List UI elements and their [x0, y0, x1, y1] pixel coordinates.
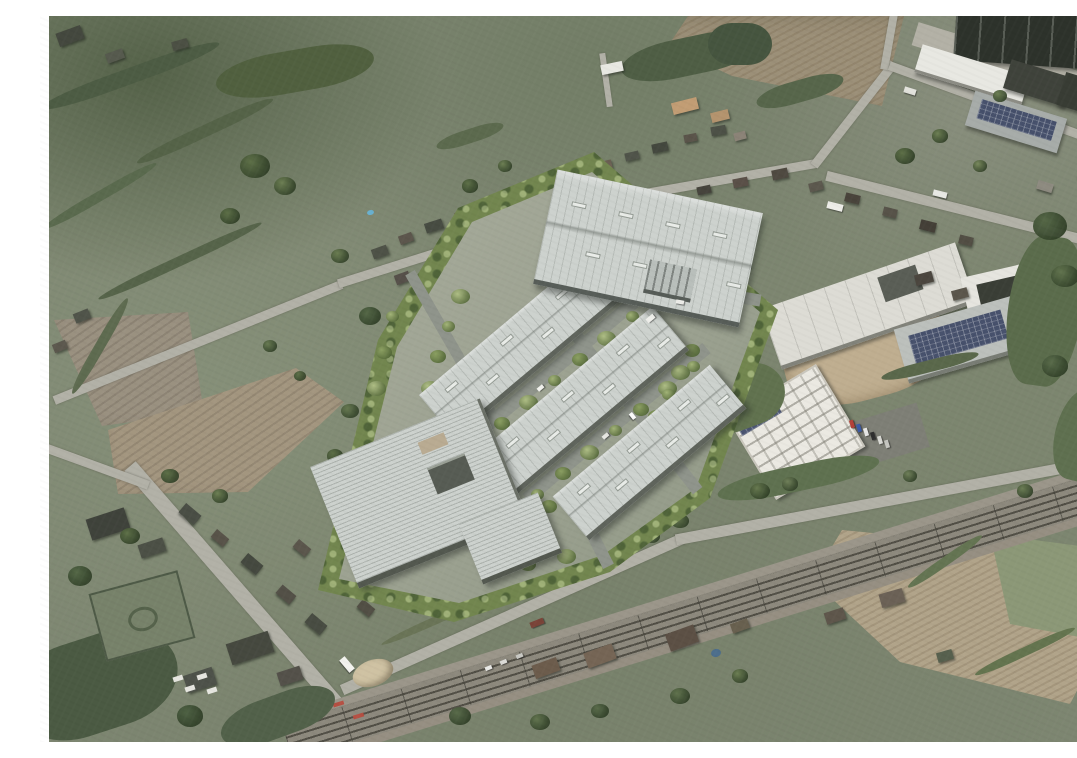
- tree: [341, 404, 359, 419]
- roof-skylight: [585, 251, 601, 259]
- tree: [376, 346, 392, 359]
- roof-skylight: [715, 394, 730, 407]
- roof-skylight: [505, 436, 520, 449]
- roof-skylight: [632, 261, 648, 269]
- tree: [555, 467, 571, 480]
- tree: [671, 365, 690, 380]
- roof-skylight: [665, 436, 680, 449]
- photo-frame-left: [40, 16, 49, 742]
- roof-skylight: [657, 337, 672, 350]
- roof-skylight: [571, 201, 587, 209]
- hedgerow: [708, 23, 772, 65]
- tree: [462, 179, 478, 192]
- tree: [1017, 484, 1033, 497]
- tree: [633, 403, 649, 416]
- roof-skylight: [618, 211, 634, 219]
- tree: [449, 707, 471, 725]
- tree: [68, 566, 92, 586]
- roof-skylight: [546, 429, 561, 442]
- tree: [367, 381, 386, 396]
- tree: [331, 249, 349, 264]
- tree: [580, 445, 599, 460]
- roof-skylight: [444, 380, 459, 393]
- house-roof: [710, 124, 726, 135]
- tree: [609, 425, 622, 436]
- roof-skylight: [726, 281, 742, 289]
- tree: [240, 154, 270, 179]
- roof-skylight: [601, 383, 616, 396]
- roof-skylight: [615, 478, 630, 491]
- tree: [294, 371, 306, 381]
- roof-skylight: [615, 344, 630, 357]
- tree: [732, 669, 748, 682]
- tree: [161, 469, 179, 484]
- tree: [430, 350, 446, 363]
- roof-skylight: [712, 231, 728, 239]
- tree: [212, 489, 228, 502]
- roof-skylight: [499, 334, 514, 347]
- tree: [782, 477, 798, 490]
- roof-skylight: [485, 373, 500, 386]
- roof-skylight: [677, 399, 692, 412]
- tree: [274, 177, 296, 195]
- tree: [932, 129, 948, 142]
- roof-skylight: [576, 483, 591, 496]
- tree: [1051, 265, 1077, 288]
- roof-skylight: [540, 327, 555, 340]
- tree: [451, 289, 470, 304]
- tree: [386, 311, 399, 322]
- tree: [359, 307, 381, 325]
- tree: [591, 704, 609, 719]
- roof-skylight: [560, 390, 575, 403]
- roof-skylight: [665, 221, 681, 229]
- aerial-photomontage: [40, 16, 1077, 742]
- tree: [442, 321, 455, 332]
- tree: [1033, 212, 1067, 240]
- roof-skylight: [626, 441, 641, 454]
